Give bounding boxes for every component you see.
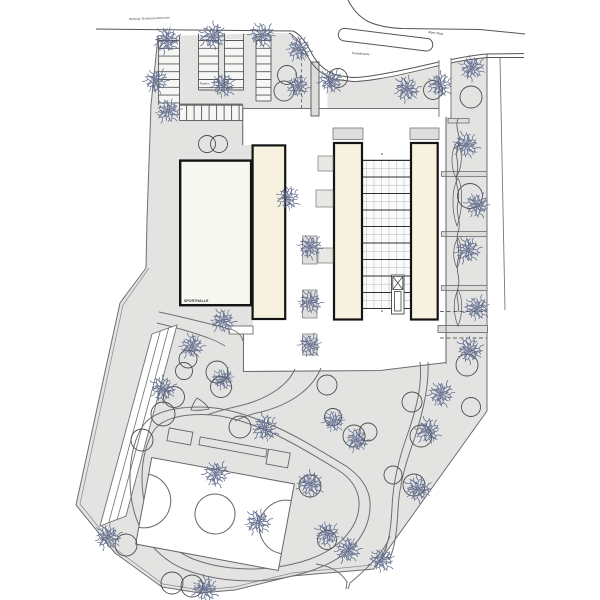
- svg-text:Parken: Parken: [200, 82, 210, 86]
- svg-text:SPORTHALLE: SPORTHALLE: [184, 299, 209, 303]
